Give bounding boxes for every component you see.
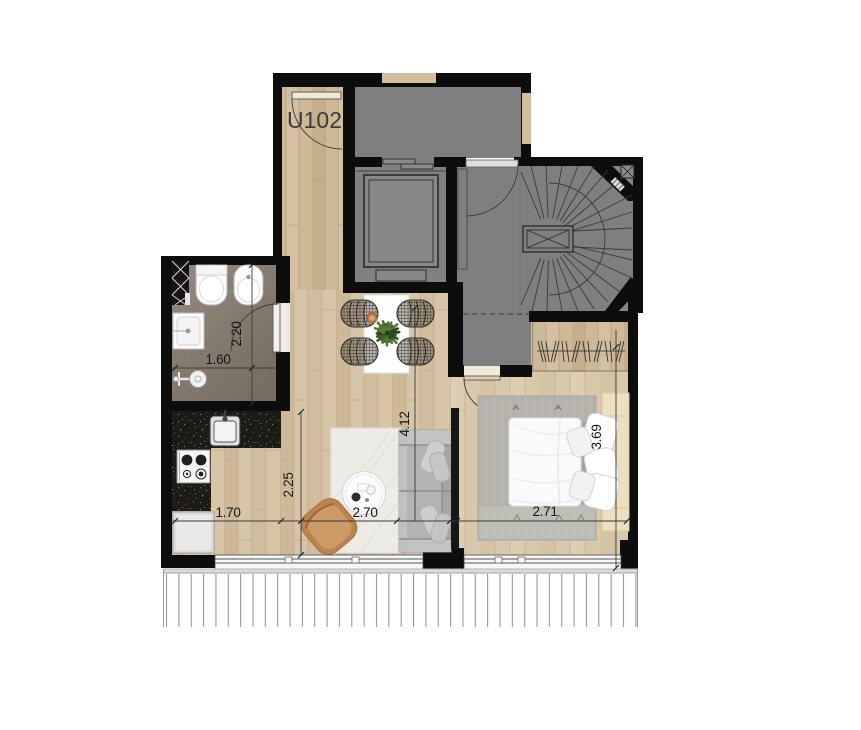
- svg-text:2.20: 2.20: [229, 321, 244, 346]
- svg-text:4.12: 4.12: [397, 411, 412, 436]
- svg-text:1.60: 1.60: [205, 352, 230, 367]
- svg-text:2.25: 2.25: [281, 472, 296, 497]
- svg-text:2.71: 2.71: [532, 504, 557, 519]
- svg-text:1.70: 1.70: [215, 505, 240, 520]
- svg-text:2.70: 2.70: [352, 505, 377, 520]
- svg-text:U102: U102: [287, 107, 342, 133]
- svg-text:3.69: 3.69: [589, 424, 604, 449]
